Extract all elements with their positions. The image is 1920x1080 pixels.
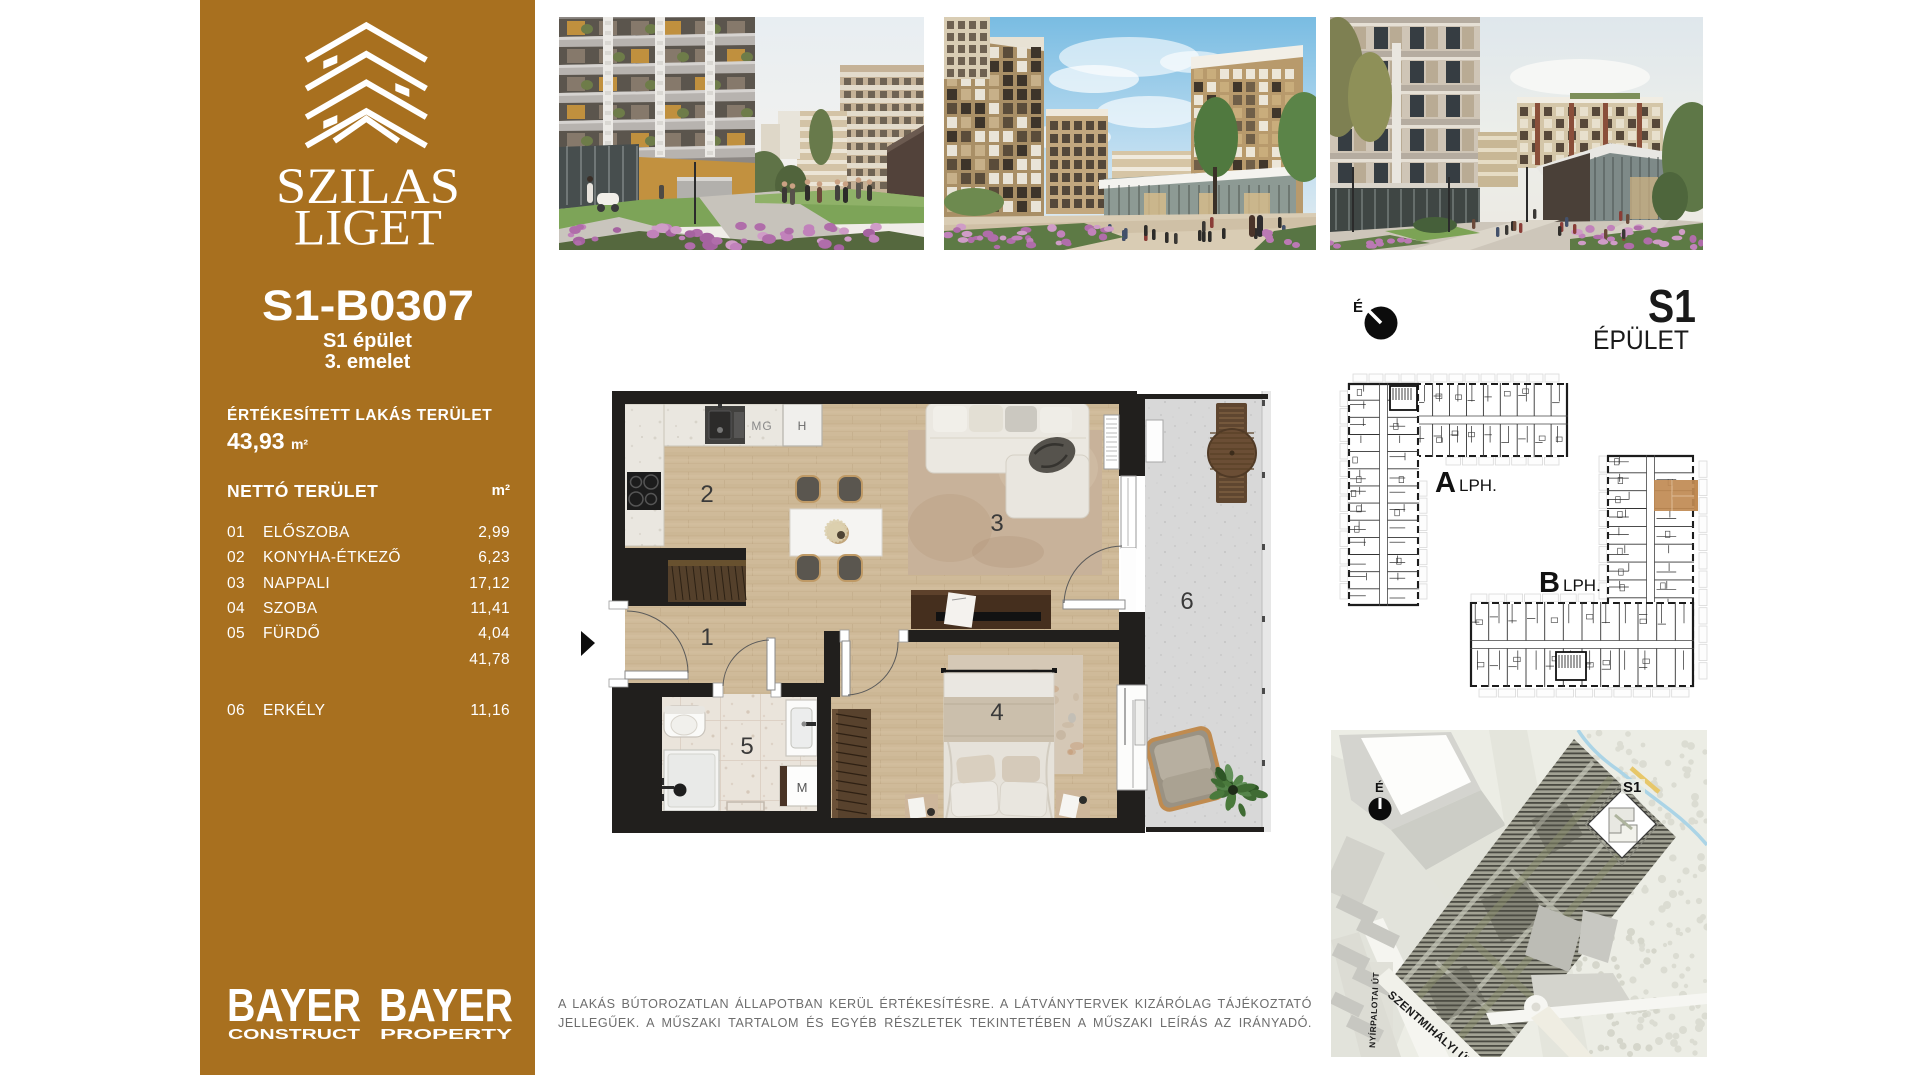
- svg-text:BAYER: BAYER: [227, 984, 361, 1031]
- svg-text:CONSTRUCT: CONSTRUCT: [228, 1026, 360, 1042]
- svg-text:A: A: [1435, 467, 1456, 499]
- svg-text:H: H: [798, 419, 807, 433]
- svg-text:1: 1: [700, 624, 713, 651]
- svg-text:PROPERTY: PROPERTY: [380, 1026, 512, 1042]
- svg-text:3: 3: [990, 510, 1003, 537]
- svg-text:S1: S1: [1623, 779, 1641, 796]
- svg-text:É: É: [1353, 299, 1363, 316]
- svg-text:6: 6: [1180, 588, 1193, 615]
- svg-text:É: É: [1375, 780, 1384, 795]
- svg-text:S1-B0307: S1-B0307: [262, 282, 474, 329]
- svg-text:ÉPÜLET: ÉPÜLET: [1593, 325, 1689, 355]
- svg-text:5: 5: [740, 733, 753, 760]
- svg-text:LPH.: LPH.: [1563, 576, 1601, 595]
- svg-text:2: 2: [700, 481, 713, 508]
- svg-text:4: 4: [990, 699, 1003, 726]
- svg-text:M: M: [797, 780, 808, 795]
- svg-text:BAYER: BAYER: [379, 984, 513, 1031]
- svg-text:MG: MG: [751, 419, 772, 433]
- svg-text:LPH.: LPH.: [1459, 476, 1497, 495]
- svg-text:B: B: [1539, 567, 1560, 599]
- svg-text:LIGET: LIGET: [294, 201, 442, 253]
